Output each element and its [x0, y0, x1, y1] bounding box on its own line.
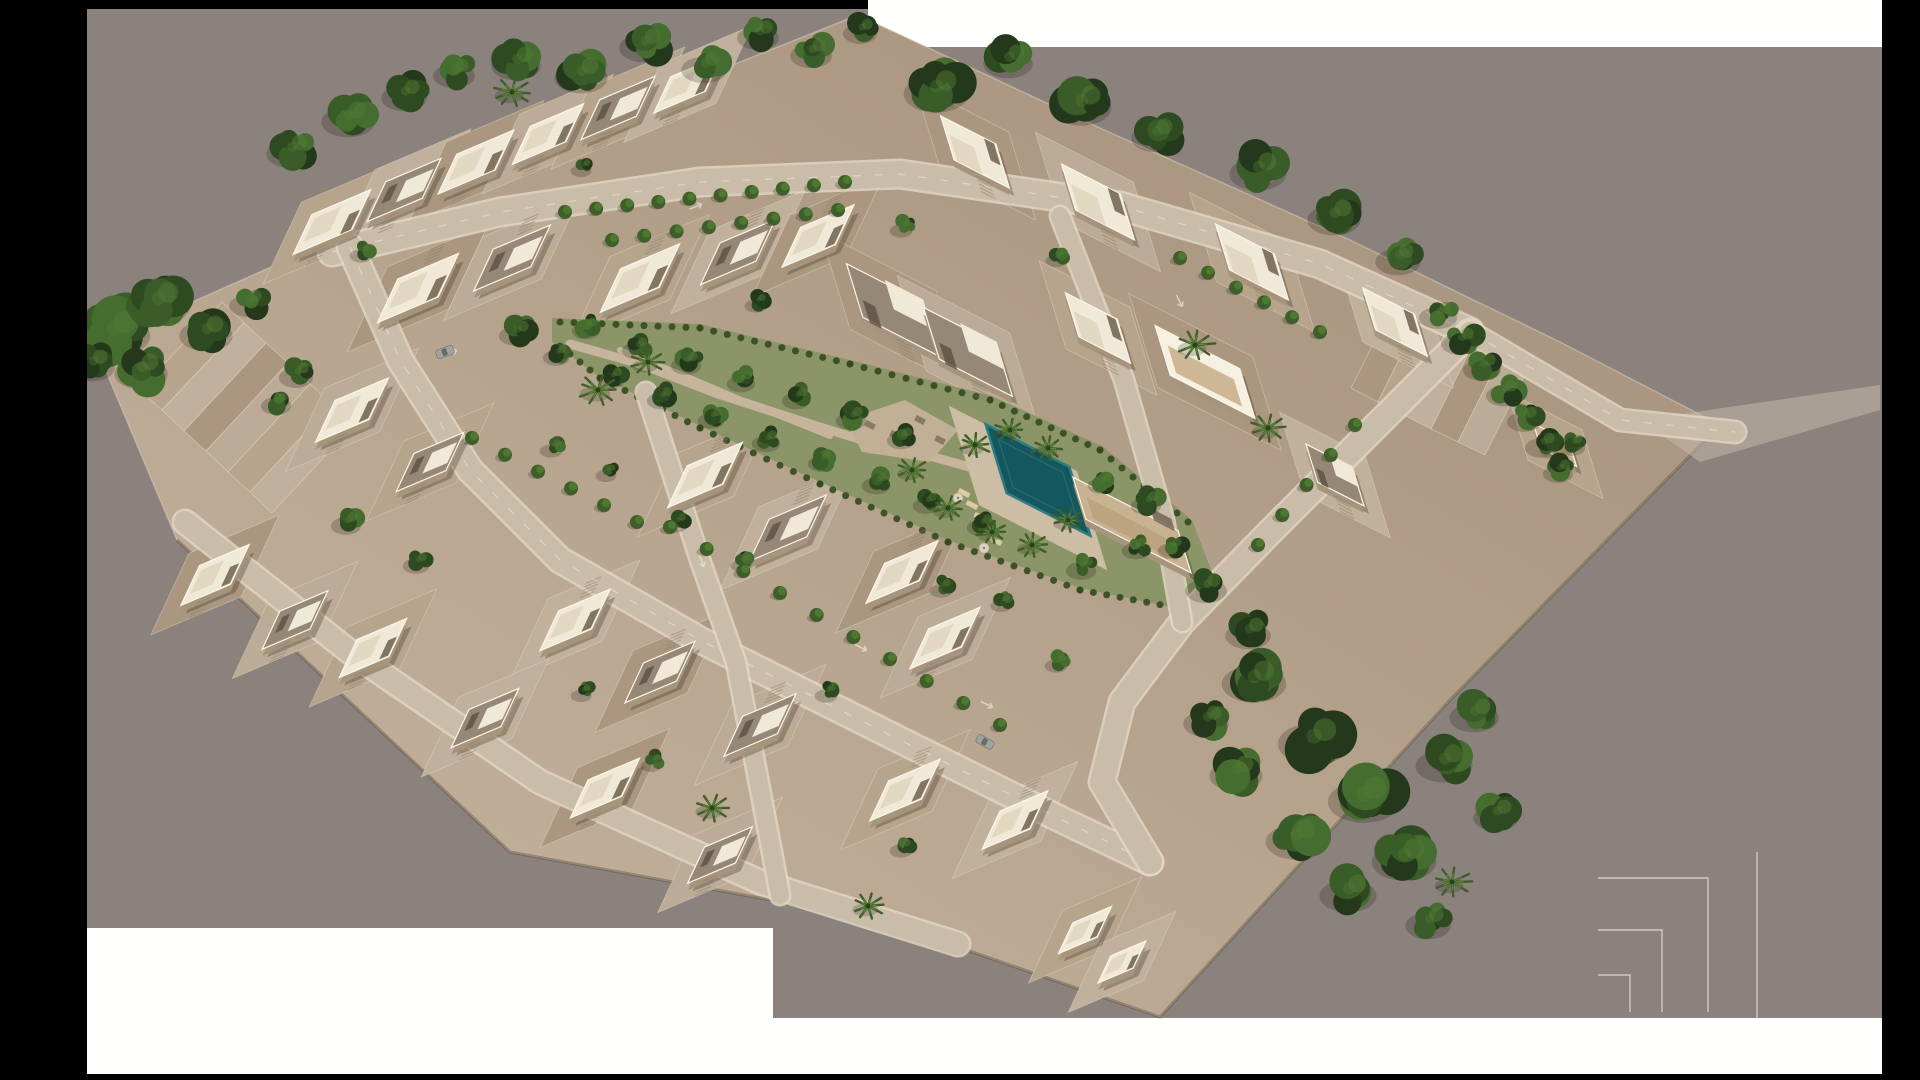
tree-canopy-highlight — [1101, 477, 1107, 483]
frame-top-strip — [87, 0, 868, 9]
park-hedge — [1011, 563, 1018, 570]
park-hedge — [750, 449, 757, 456]
tree-canopy-highlight — [1395, 250, 1405, 260]
tree-canopy-highlight — [586, 321, 592, 327]
tree-canopy-highlight — [1152, 126, 1162, 136]
park-hedge — [1077, 587, 1084, 594]
tree-canopy-highlight — [901, 842, 906, 847]
tree-canopy-highlight — [850, 411, 856, 417]
tree-canopy-highlight — [202, 323, 213, 334]
tree-canopy-highlight — [859, 24, 866, 31]
park-hedge — [710, 328, 717, 335]
park-hedge — [751, 338, 758, 345]
tree-canopy-highlight — [1057, 252, 1061, 256]
park-hedge — [1185, 519, 1192, 526]
tree-canopy-highlight — [901, 431, 907, 437]
tree-canopy-highlight — [941, 582, 946, 587]
park-hedge — [803, 474, 810, 481]
tree-canopy-highlight — [1470, 706, 1480, 716]
frame-bottom-strip — [0, 1074, 1920, 1080]
tree-canopy-highlight — [741, 374, 747, 380]
park-hedge — [868, 504, 875, 511]
tree-canopy-highlight — [821, 455, 827, 461]
tree-canopy-highlight — [1307, 729, 1322, 744]
tree-canopy-highlight — [742, 557, 746, 561]
tree-canopy-highlight — [1439, 753, 1451, 765]
park-hedge — [763, 456, 770, 463]
tree-canopy-highlight — [611, 372, 617, 378]
park-hedge — [683, 324, 690, 331]
tree-canopy-highlight — [515, 326, 522, 333]
tree-canopy-highlight — [652, 757, 656, 761]
tree-canopy-highlight — [1523, 412, 1530, 419]
tree-canopy-highlight — [930, 80, 944, 94]
tree-canopy-highlight — [1436, 307, 1444, 315]
tree-canopy-highlight — [137, 361, 148, 372]
park-hedge — [765, 341, 772, 348]
tree-canopy-highlight — [1557, 464, 1563, 470]
park-hedge — [945, 539, 952, 546]
park-hedge — [1117, 594, 1124, 601]
tree-canopy-highlight — [451, 65, 460, 74]
tree-canopy-highlight — [1493, 806, 1503, 816]
park-hedge — [1130, 596, 1137, 603]
tree-canopy-highlight — [755, 27, 764, 36]
park-hedge — [737, 334, 744, 341]
park-hedge — [971, 548, 978, 555]
tree-canopy-highlight — [246, 295, 254, 303]
tree-canopy-highlight — [89, 356, 99, 366]
tree-canopy-highlight — [1398, 848, 1412, 862]
tree-canopy-highlight — [152, 292, 166, 306]
park-hedge — [855, 498, 862, 505]
tree-canopy-highlight — [1004, 52, 1014, 62]
park-hedge — [1037, 572, 1044, 579]
park-hedge — [1143, 599, 1150, 606]
park-hedge — [932, 533, 939, 540]
tree-canopy-highlight — [640, 36, 650, 46]
tree-canopy-highlight — [287, 142, 297, 152]
park-hedge — [587, 367, 594, 374]
tree-canopy-highlight — [275, 396, 281, 402]
pool-umbrella-pole — [957, 497, 959, 499]
park-hedge — [672, 412, 679, 419]
park-hedge — [959, 389, 966, 396]
park-hedge — [1063, 582, 1070, 589]
park-hedge — [889, 371, 896, 378]
park-hedge — [778, 344, 785, 351]
park-hedge — [613, 321, 620, 328]
tree-canopy-highlight — [1248, 670, 1262, 684]
tree-canopy-highlight — [577, 65, 588, 76]
park-hedge — [641, 322, 648, 329]
park-hedge — [557, 319, 564, 326]
park-hedge — [1130, 474, 1137, 481]
park-hedge — [958, 543, 965, 550]
park-hedge — [655, 323, 662, 330]
tree-canopy-highlight — [556, 349, 562, 355]
frame-right-bar — [1882, 0, 1920, 1080]
tree-canopy-highlight — [676, 517, 681, 522]
park-hedge — [790, 468, 797, 475]
tree-canopy-highlight — [1330, 207, 1341, 218]
park-hedge — [833, 357, 840, 364]
tree-canopy-highlight — [1245, 624, 1255, 634]
tree-canopy-highlight — [512, 54, 522, 64]
tree-canopy-highlight — [1145, 496, 1151, 502]
tree-canopy-highlight — [1232, 763, 1243, 774]
tree-canopy-highlight — [901, 222, 906, 227]
tree-canopy-highlight — [756, 297, 761, 302]
park-hedge — [806, 351, 813, 358]
park-hedge — [1060, 430, 1067, 437]
park-hedge — [1103, 591, 1110, 598]
park-hedge — [669, 323, 676, 330]
park-hedge — [724, 331, 731, 338]
park-hedge — [931, 382, 938, 389]
park-hedge — [1023, 413, 1030, 420]
tree-canopy-highlight — [551, 442, 556, 447]
tree-canopy-highlight — [926, 497, 932, 503]
tree-canopy-highlight — [1136, 541, 1142, 547]
park-hedge — [987, 397, 994, 404]
tree-canopy-highlight — [1290, 828, 1303, 841]
park-hedge — [861, 364, 868, 371]
park-hedge — [842, 492, 849, 499]
tree-canopy-highlight — [1357, 787, 1372, 802]
tree-canopy-highlight — [1080, 561, 1086, 567]
park-hedge — [1050, 577, 1057, 584]
tree-canopy-highlight — [1075, 94, 1088, 107]
tree-canopy-highlight — [295, 368, 302, 375]
tree-canopy-highlight — [1425, 914, 1435, 924]
tree-canopy-highlight — [1056, 657, 1061, 662]
park-hedge — [847, 361, 854, 368]
tree-canopy-highlight — [701, 58, 711, 68]
tree-canopy-highlight — [1171, 542, 1177, 548]
tree-canopy-highlight — [582, 162, 586, 166]
park-hedge — [817, 481, 824, 488]
park-hedge — [819, 354, 826, 361]
tree-canopy-highlight — [1541, 438, 1548, 445]
tree-canopy-highlight — [1203, 712, 1213, 722]
tree-canopy-highlight — [1343, 883, 1355, 895]
tree-canopy-highlight — [826, 687, 831, 692]
tree-canopy-highlight — [107, 321, 122, 336]
park-hedge — [1157, 601, 1164, 608]
park-hedge — [984, 553, 991, 560]
tree-canopy-highlight — [711, 412, 717, 418]
park-hedge — [697, 325, 704, 332]
tree-canopy-highlight — [1203, 580, 1212, 589]
park-hedge — [903, 375, 910, 382]
tree-canopy-highlight — [808, 45, 817, 54]
park-hedge — [875, 368, 882, 375]
pool-umbrella-pole — [983, 547, 985, 549]
park-hedge — [906, 521, 913, 528]
park-hedge — [1108, 456, 1115, 463]
park-hedge — [999, 402, 1006, 409]
tree-canopy-highlight — [1458, 333, 1466, 341]
tree-canopy-highlight — [876, 476, 882, 482]
white-patch — [87, 928, 773, 1074]
masterplan-render — [0, 0, 1920, 1080]
tree-canopy-highlight — [582, 687, 586, 691]
park-hedge — [1090, 589, 1097, 596]
tree-canopy-highlight — [796, 391, 802, 397]
park-hedge — [997, 558, 1004, 565]
park-hedge — [627, 322, 634, 329]
park-hedge — [945, 386, 952, 393]
park-hedge — [684, 418, 691, 425]
park-hedge — [710, 431, 717, 438]
tree-canopy-highlight — [345, 516, 351, 522]
tree-canopy-highlight — [416, 557, 422, 563]
park-hedge — [1011, 408, 1018, 415]
park-hedge — [1119, 465, 1126, 472]
tree-canopy-highlight — [636, 341, 642, 347]
park-hedge — [622, 387, 629, 394]
park-hedge — [1035, 419, 1042, 426]
tree-canopy-highlight — [1253, 161, 1265, 173]
tree-canopy-highlight — [361, 247, 366, 252]
tree-canopy-highlight — [344, 109, 355, 120]
park-hedge — [881, 510, 888, 517]
tree-canopy-highlight — [1502, 385, 1510, 393]
white-patch — [868, 0, 1882, 47]
park-hedge — [829, 486, 836, 493]
park-hedge — [1097, 447, 1104, 454]
tree-canopy-highlight — [1480, 359, 1488, 367]
tree-canopy-highlight — [1002, 597, 1006, 601]
park-hedge — [1048, 424, 1055, 431]
tree-canopy-highlight — [607, 467, 611, 471]
park-hedge — [1084, 441, 1091, 448]
tree-canopy-highlight — [766, 434, 772, 440]
park-hedge — [1024, 567, 1031, 574]
render-viewport — [0, 0, 1920, 1080]
white-patch — [772, 1018, 1882, 1074]
park-hedge — [917, 379, 924, 386]
park-hedge — [893, 515, 900, 522]
tree-canopy-highlight — [685, 356, 691, 362]
park-hedge — [577, 359, 584, 366]
tree-canopy-highlight — [661, 391, 667, 397]
park-hedge — [1072, 435, 1079, 442]
park-hedge — [777, 462, 784, 469]
frame-left-bar — [0, 0, 87, 1080]
tree-canopy-highlight — [1572, 439, 1578, 445]
park-hedge — [792, 347, 799, 354]
tree-canopy-highlight — [401, 86, 411, 96]
